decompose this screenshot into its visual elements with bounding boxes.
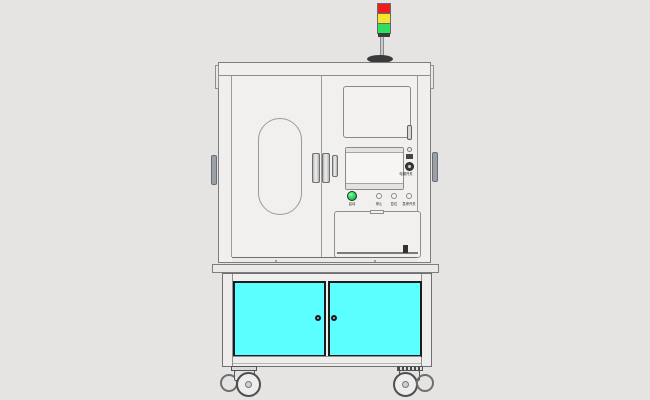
- tray-notch: [370, 210, 384, 214]
- caster-hub: [245, 381, 252, 388]
- key-switch-knob[interactable]: [405, 162, 414, 171]
- access-tray[interactable]: [334, 211, 421, 258]
- screen-bottom-bezel: [346, 183, 403, 189]
- top-cap: [219, 63, 430, 76]
- tray-latch[interactable]: [403, 245, 408, 253]
- frame-column-left: [219, 76, 232, 257]
- view-window-handle[interactable]: [407, 125, 412, 140]
- side-handle-right[interactable]: [432, 152, 438, 182]
- table-top: [212, 264, 439, 273]
- lower-frame-post-right: [421, 274, 431, 366]
- caster-left: [219, 365, 265, 399]
- upper-bottom-band: [232, 257, 417, 262]
- left-door-handle[interactable]: [312, 153, 320, 183]
- tower-pole: [380, 37, 384, 56]
- corner-post-right: [430, 65, 434, 89]
- caster-wheel: [393, 372, 418, 397]
- caster-foot-loop: [416, 374, 434, 392]
- screen-top-bezel: [346, 148, 403, 153]
- indicator-lamp: [407, 147, 412, 152]
- touch-screen[interactable]: [345, 147, 404, 190]
- lower-storage-cabinet: [222, 273, 432, 367]
- usb-port[interactable]: [406, 154, 413, 159]
- machine-render: 电源开关 启动 停止 复位 急停开关: [0, 0, 650, 400]
- storage-door-knob-right[interactable]: [331, 315, 337, 321]
- estop-button-label: 急停开关: [398, 203, 420, 206]
- storage-door-knob-left[interactable]: [315, 315, 321, 321]
- oval-inspection-window: [258, 118, 302, 215]
- estop-button[interactable]: [406, 193, 412, 199]
- view-window: [343, 86, 411, 138]
- reset-button[interactable]: [391, 193, 397, 199]
- key-switch-label: 电源开关: [395, 173, 417, 176]
- caster-hub: [402, 381, 409, 388]
- caster-right: [389, 365, 435, 399]
- panel-handle[interactable]: [332, 155, 338, 177]
- right-door-handle[interactable]: [322, 153, 330, 183]
- caster-wheel: [236, 372, 261, 397]
- start-button[interactable]: [347, 191, 357, 201]
- upper-enclosure: 电源开关 启动 停止 复位 急停开关: [218, 62, 431, 263]
- storage-door-right[interactable]: [328, 281, 422, 357]
- screw-icon: [275, 260, 277, 262]
- lower-frame-post-left: [223, 274, 233, 366]
- storage-door-left[interactable]: [233, 281, 326, 357]
- screw-icon: [374, 260, 376, 262]
- stop-button[interactable]: [376, 193, 382, 199]
- start-button-label: 启动: [341, 203, 363, 206]
- side-handle-left[interactable]: [211, 155, 217, 185]
